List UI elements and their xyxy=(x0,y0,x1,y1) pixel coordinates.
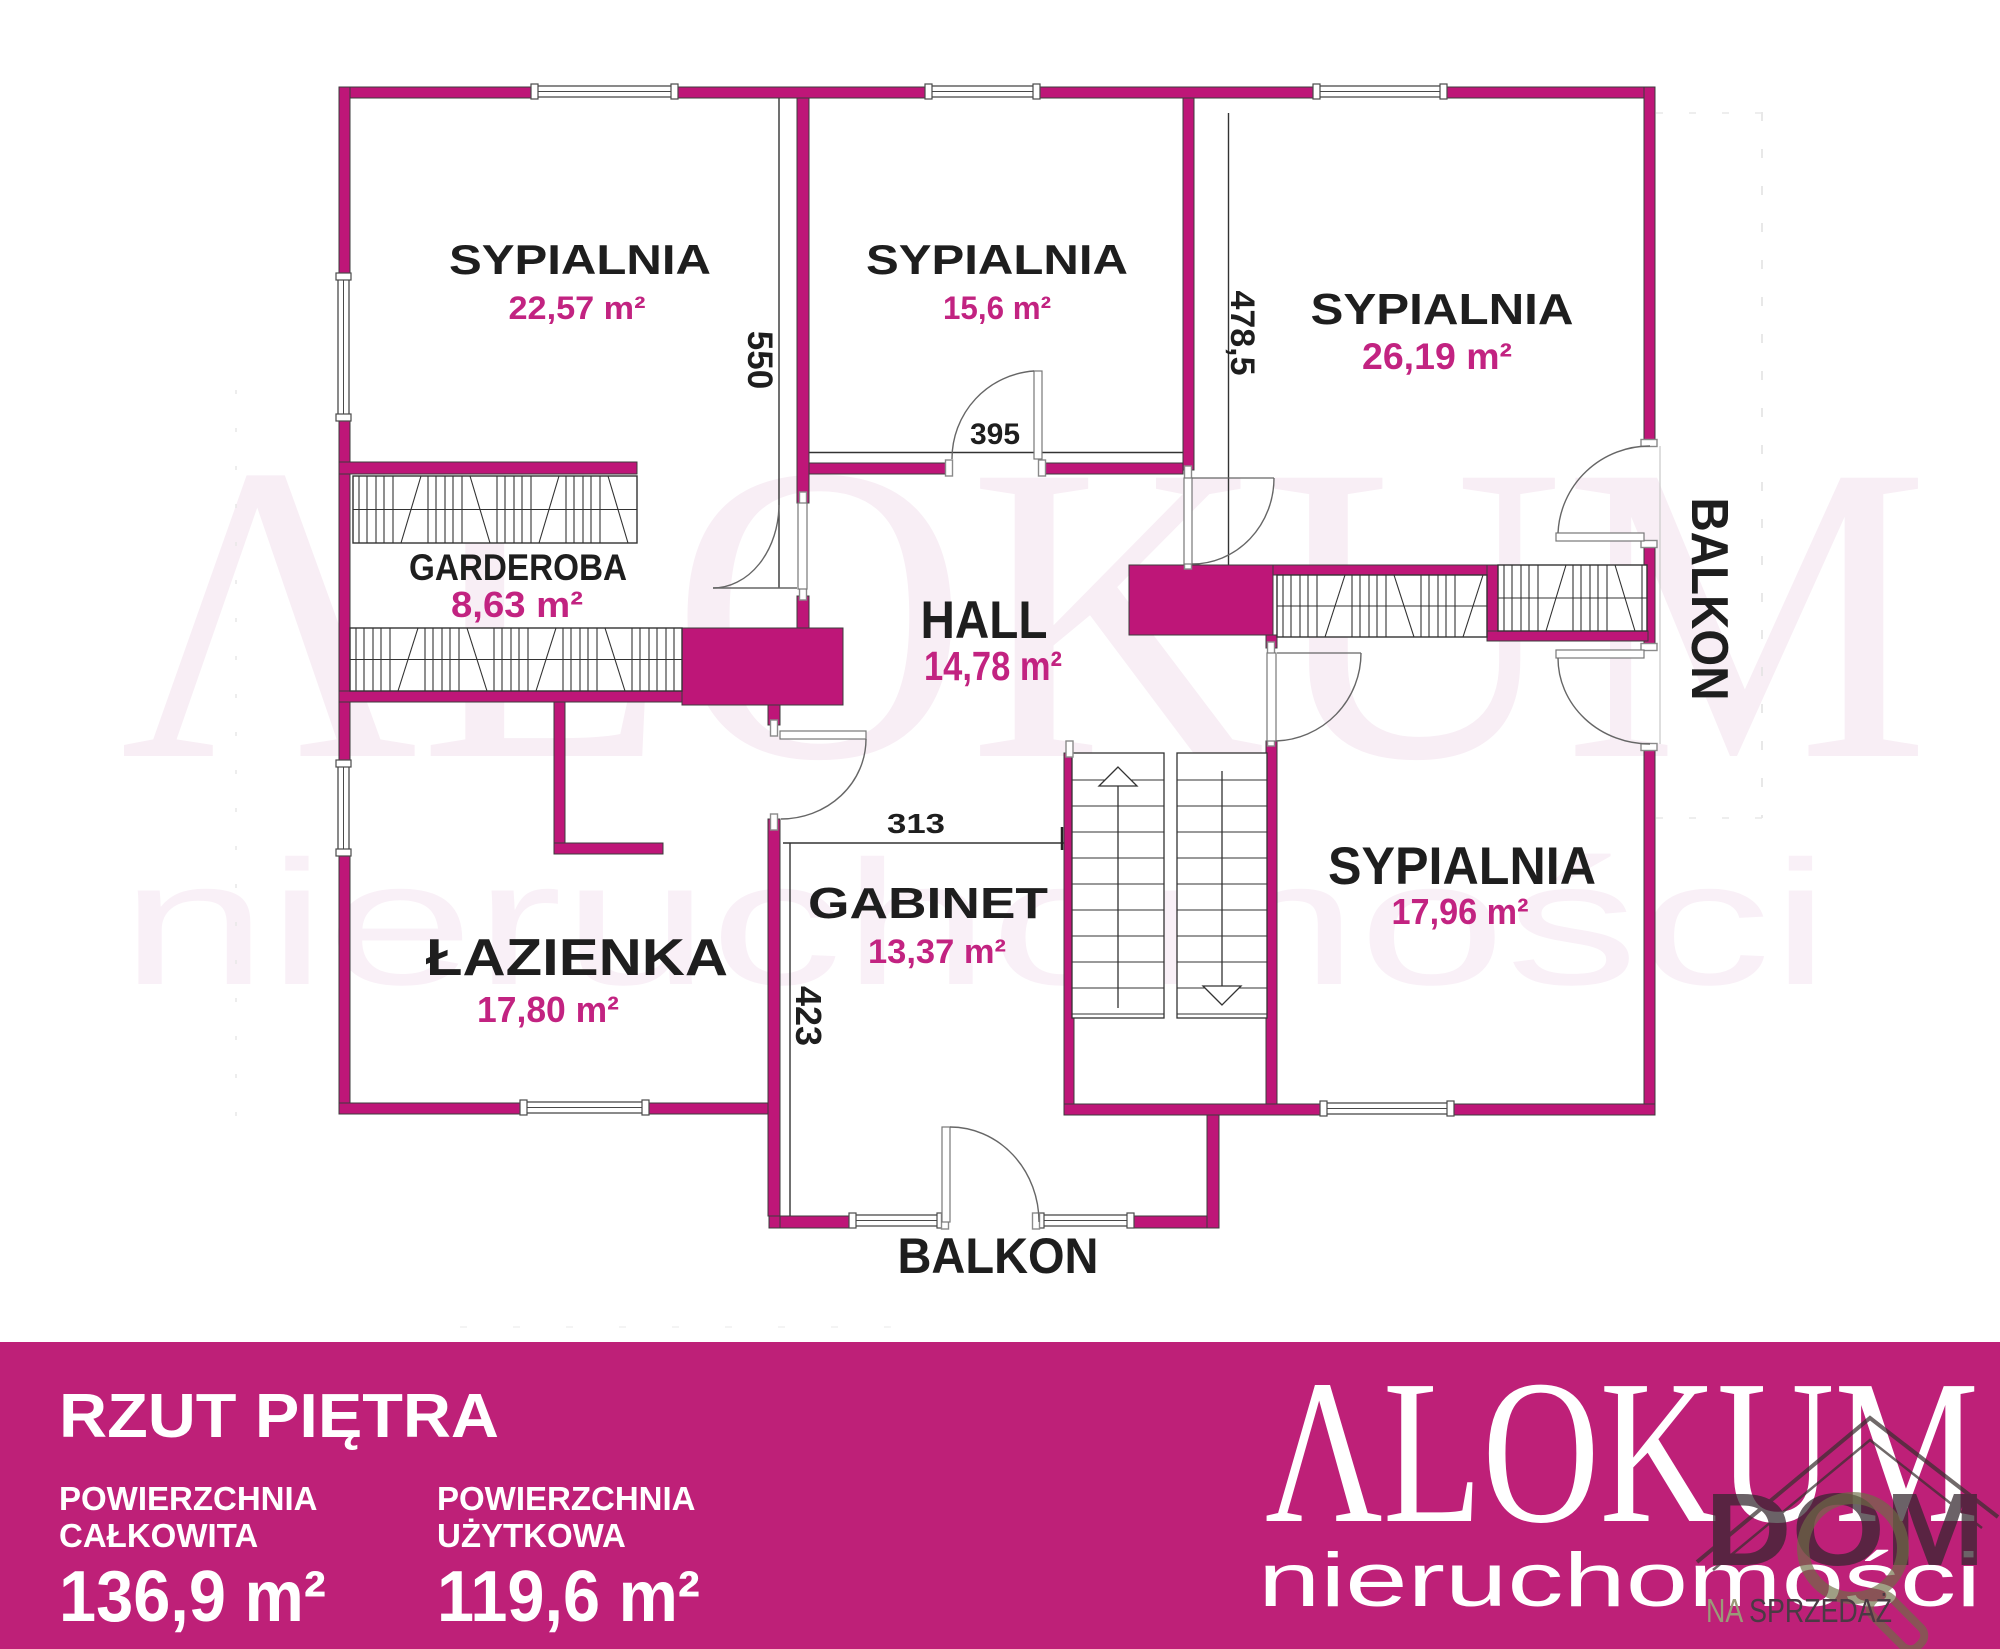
svg-text:POWIERZCHNIA: POWIERZCHNIA xyxy=(59,1480,318,1517)
svg-text:395: 395 xyxy=(970,418,1020,451)
svg-text:313: 313 xyxy=(887,808,945,839)
svg-text:136,9 m²: 136,9 m² xyxy=(59,1557,326,1637)
svg-text:CAŁKOWITA: CAŁKOWITA xyxy=(59,1517,258,1554)
svg-text:15,6 m²: 15,6 m² xyxy=(943,290,1051,326)
svg-text:HALL: HALL xyxy=(921,591,1048,650)
svg-text:8,63 m²: 8,63 m² xyxy=(451,584,583,625)
svg-text:119,6 m²: 119,6 m² xyxy=(437,1557,700,1637)
svg-text:SYPIALNIA: SYPIALNIA xyxy=(866,236,1128,283)
svg-text:RZUT PIĘTRA: RZUT PIĘTRA xyxy=(59,1382,499,1451)
svg-text:BALKON: BALKON xyxy=(1680,498,1738,701)
svg-text:SYPIALNIA: SYPIALNIA xyxy=(1311,285,1574,334)
svg-text:17,96 m²: 17,96 m² xyxy=(1392,891,1529,932)
svg-text:13,37 m²: 13,37 m² xyxy=(868,933,1006,971)
svg-text:GARDEROBA: GARDEROBA xyxy=(409,547,627,588)
svg-text:DOM: DOM xyxy=(1705,1472,1985,1587)
svg-text:550: 550 xyxy=(740,331,779,389)
svg-text:22,57 m²: 22,57 m² xyxy=(509,290,646,326)
svg-text:478,5: 478,5 xyxy=(1223,290,1261,375)
svg-text:SYPIALNIA: SYPIALNIA xyxy=(1328,837,1596,896)
svg-text:26,19 m²: 26,19 m² xyxy=(1362,336,1512,377)
svg-text:SYPIALNIA: SYPIALNIA xyxy=(449,236,711,283)
svg-text:BALKON: BALKON xyxy=(898,1228,1099,1284)
svg-text:14,78 m²: 14,78 m² xyxy=(924,643,1062,689)
svg-text:GABINET: GABINET xyxy=(808,879,1048,928)
svg-text:UŻYTKOWA: UŻYTKOWA xyxy=(437,1517,626,1554)
svg-text:423: 423 xyxy=(788,986,829,1046)
svg-text:NA SPRZEDAŻ: NA SPRZEDAŻ xyxy=(1706,1592,1892,1629)
svg-text:ŁAZIENKA: ŁAZIENKA xyxy=(426,929,728,987)
svg-text:POWIERZCHNIA: POWIERZCHNIA xyxy=(437,1480,696,1517)
svg-text:17,80 m²: 17,80 m² xyxy=(477,989,619,1030)
